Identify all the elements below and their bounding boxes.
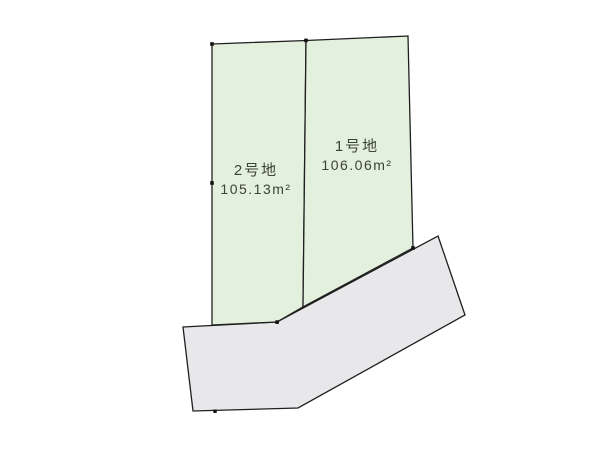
plot-map-drawing [0, 0, 600, 449]
land-plot-map: 1号地 106.06m² 2号地 105.13m² [0, 0, 600, 449]
plot-2-shape [212, 41, 306, 326]
